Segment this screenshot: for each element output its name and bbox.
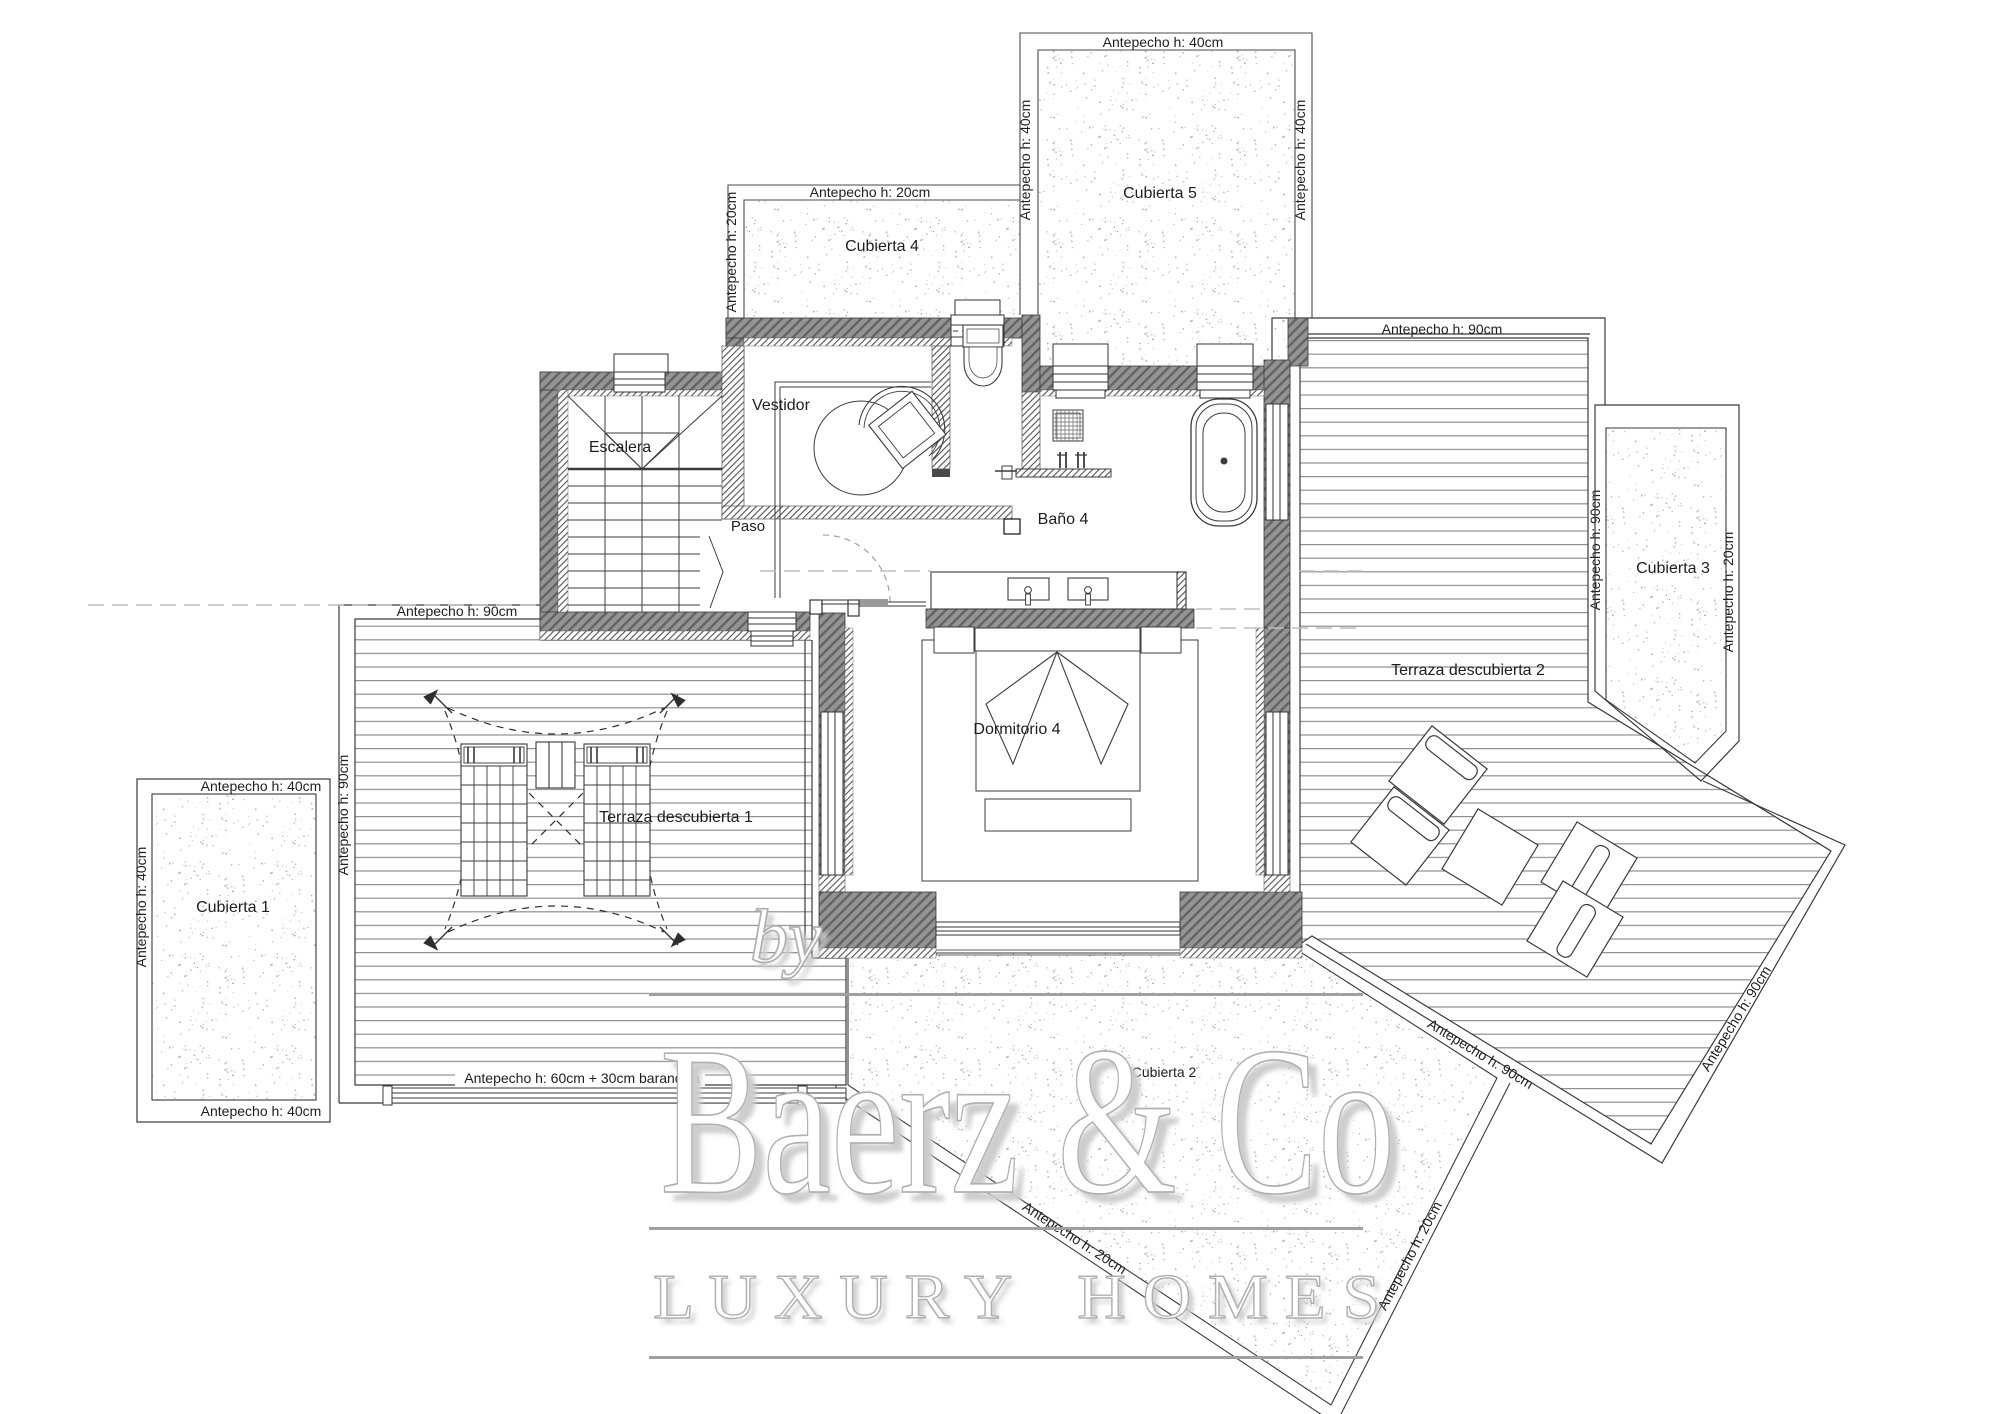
- svg-text:Terraza descubierta 1: Terraza descubierta 1: [599, 809, 753, 826]
- svg-text:Paso: Paso: [731, 518, 765, 535]
- svg-text:Antepecho h: 40cm: Antepecho h: 40cm: [201, 1103, 322, 1119]
- svg-text:Baerz & Co: Baerz & Co: [660, 1003, 1395, 1238]
- svg-text:Antepecho h: 90cm: Antepecho h: 90cm: [1382, 321, 1503, 337]
- svg-text:Baño 4: Baño 4: [1038, 511, 1089, 528]
- svg-text:Antepecho h: 40cm: Antepecho h: 40cm: [1017, 100, 1033, 221]
- svg-text:Cubierta 4: Cubierta 4: [845, 238, 919, 255]
- svg-text:Antepecho h: 40cm: Antepecho h: 40cm: [201, 778, 322, 794]
- svg-text:Cubierta 5: Cubierta 5: [1123, 185, 1197, 202]
- svg-text:Antepecho h: 90cm: Antepecho h: 90cm: [335, 755, 351, 876]
- svg-text:Antepecho h: 20cm: Antepecho h: 20cm: [723, 192, 739, 313]
- svg-text:Cubierta 3: Cubierta 3: [1636, 560, 1710, 577]
- svg-text:by: by: [750, 895, 822, 979]
- svg-text:Antepecho h: 40cm: Antepecho h: 40cm: [133, 847, 149, 968]
- svg-text:Antepecho h: 20cm: Antepecho h: 20cm: [810, 184, 931, 200]
- svg-text:Antepecho h: 40cm: Antepecho h: 40cm: [1103, 34, 1224, 50]
- svg-text:Cubierta 1: Cubierta 1: [196, 899, 270, 916]
- svg-text:Escalera: Escalera: [589, 439, 651, 456]
- svg-text:Dormitorio 4: Dormitorio 4: [973, 721, 1060, 738]
- svg-text:Antepecho h: 20cm: Antepecho h: 20cm: [1720, 532, 1736, 653]
- svg-text:Terraza descubierta 2: Terraza descubierta 2: [1391, 662, 1545, 679]
- svg-text:Antepecho h: 40cm: Antepecho h: 40cm: [1292, 100, 1308, 221]
- svg-text:Vestidor: Vestidor: [752, 397, 810, 414]
- svg-text:L U X U R Y H O M E S: L U X U R Y H O M E S: [653, 1261, 1380, 1332]
